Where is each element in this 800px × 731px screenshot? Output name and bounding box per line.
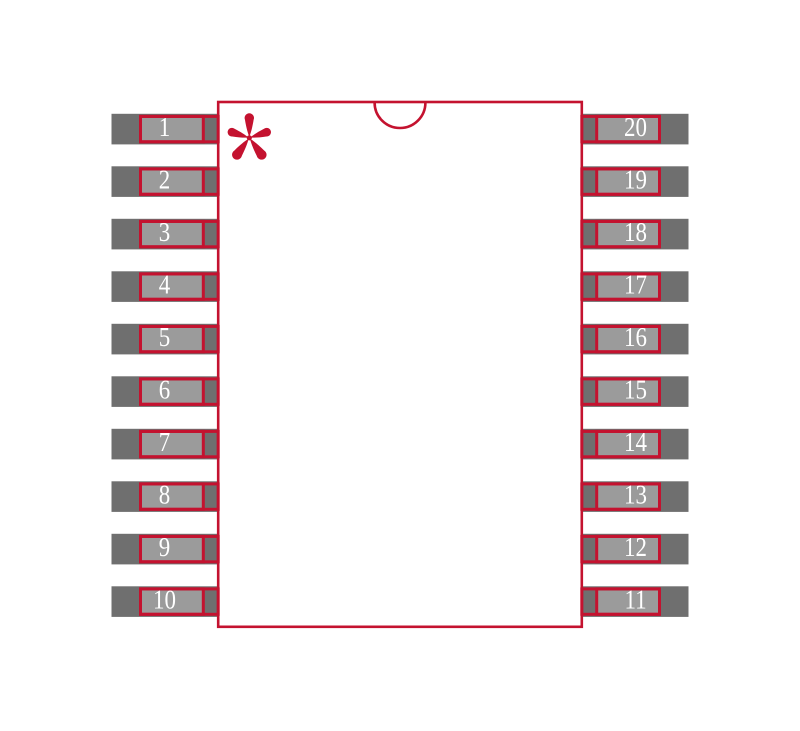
svg-text:9: 9 <box>159 533 170 562</box>
svg-text:4: 4 <box>159 271 171 300</box>
svg-text:3: 3 <box>159 218 170 247</box>
svg-text:7: 7 <box>159 428 170 457</box>
svg-text:10: 10 <box>153 586 176 615</box>
svg-text:19: 19 <box>624 166 647 195</box>
svg-text:14: 14 <box>624 428 647 457</box>
svg-text:5: 5 <box>159 323 170 352</box>
svg-text:11: 11 <box>624 586 646 615</box>
svg-text:8: 8 <box>159 481 170 510</box>
svg-text:18: 18 <box>624 218 647 247</box>
svg-text:13: 13 <box>624 481 647 510</box>
svg-text:20: 20 <box>624 113 647 142</box>
svg-text:2: 2 <box>159 166 170 195</box>
svg-text:6: 6 <box>159 376 170 405</box>
svg-text:16: 16 <box>624 323 647 352</box>
svg-text:12: 12 <box>624 533 647 562</box>
svg-text:15: 15 <box>624 376 647 405</box>
svg-text:1: 1 <box>159 113 170 142</box>
svg-text:17: 17 <box>624 271 647 300</box>
